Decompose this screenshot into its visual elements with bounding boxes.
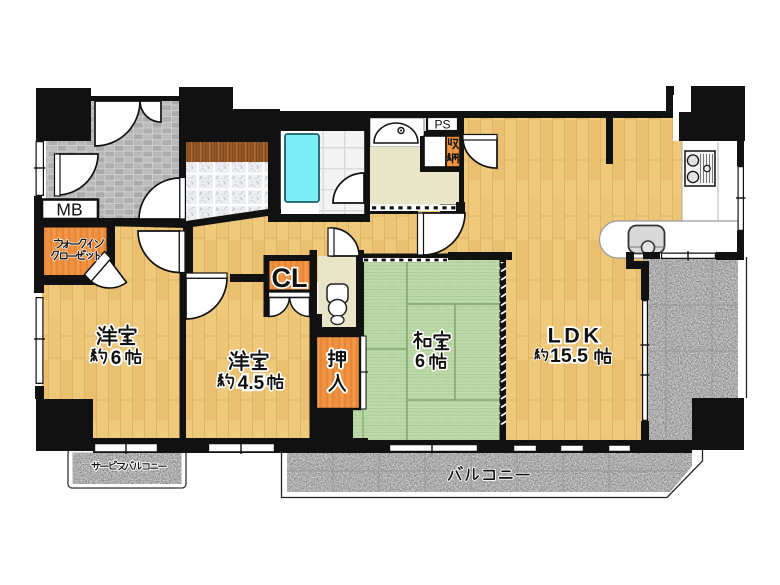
svg-text:PS: PS [434,118,450,132]
svg-text:LDK: LDK [548,324,603,348]
svg-text:4.5: 4.5 [238,373,265,394]
svg-text:6: 6 [415,351,425,371]
svg-text:6: 6 [111,348,122,369]
svg-text:MB: MB [56,200,82,220]
svg-text:CL: CL [272,263,308,293]
svg-text:15.5: 15.5 [550,345,588,367]
